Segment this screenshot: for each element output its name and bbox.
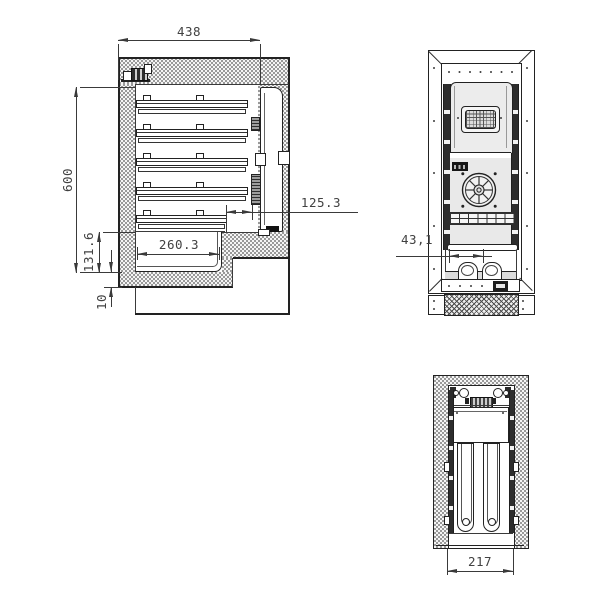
enclosure-bottom-line (436, 545, 524, 547)
dim-arrow (97, 263, 101, 273)
dim-ext-line (219, 247, 220, 260)
dim-arrow (209, 252, 219, 256)
dim-43-1-label: 43,1 (396, 233, 438, 247)
fan-icon (459, 170, 499, 210)
dim-125-3-label: 125.3 (295, 196, 347, 210)
dim-line (76, 87, 77, 273)
bracket-base-line (448, 405, 513, 406)
dim-arrow (503, 569, 513, 573)
dim-arrow (250, 38, 260, 42)
dim-arrow (109, 287, 113, 297)
base-panel (441, 279, 520, 292)
tube-port (488, 518, 496, 526)
dim-arrow (74, 87, 78, 97)
dim-arrow (242, 210, 252, 214)
shelf-rail (138, 224, 225, 229)
step-top-line (222, 232, 258, 233)
insulation-hatch-left (119, 84, 135, 287)
body-outline-top (119, 57, 289, 59)
dim-ext-line (118, 44, 119, 80)
dim-arrow (447, 569, 457, 573)
louver-strip (449, 212, 515, 225)
hinge-pin (144, 64, 152, 74)
terminal-clip (492, 398, 496, 404)
display-digits (454, 165, 465, 169)
terminal-clip (465, 398, 469, 404)
dim-arrow (97, 232, 101, 242)
insulation-hatch-bottom-band (119, 272, 233, 287)
grille-tab-right (517, 295, 535, 315)
rail-tab (513, 462, 519, 472)
ventilation-grille (444, 294, 519, 316)
dim-ext-line (260, 44, 261, 84)
shelf-rail (138, 196, 246, 201)
body-outline-left (118, 57, 120, 287)
shelf-bar (136, 215, 227, 223)
dim-260-3-label: 260.3 (154, 238, 204, 252)
rail-tab (513, 516, 519, 525)
door-hinge-cup-inner (255, 153, 266, 166)
dim-line (137, 254, 219, 255)
dim-ext-line (103, 232, 135, 233)
dim-217-label: 217 (456, 555, 504, 569)
cover-edge-line (454, 86, 455, 148)
shelf-rail (138, 167, 246, 172)
insulation-hatch-step-block (222, 232, 289, 258)
dim-ext-line (513, 549, 514, 575)
heat-pipe-tube-1 (457, 443, 474, 532)
machine-box-bottom (135, 313, 290, 315)
dim-600-label: 600 (61, 150, 75, 210)
power-connector (493, 281, 508, 291)
dim-arrow (473, 254, 483, 258)
cavity-left-line (135, 84, 136, 272)
body-outline-right (288, 57, 290, 314)
technical-drawing-sheet: 438 600 131.6 10 (0, 0, 600, 600)
condenser-box-line (454, 411, 507, 412)
cavity-top-line (135, 84, 289, 85)
dim-arrow (74, 263, 78, 273)
pipe-top-ellipse (485, 265, 498, 276)
bracket-hole-right (493, 388, 503, 398)
shelf-bar (136, 158, 248, 166)
shelf-rail (138, 138, 246, 143)
door-bottom-cap (258, 229, 270, 236)
dim-ext-line (80, 87, 135, 88)
tube-inner (487, 444, 498, 525)
dim-ext-line (483, 249, 484, 263)
dim-arrow (226, 210, 236, 214)
tube-port (462, 518, 470, 526)
shelf-bar (136, 100, 248, 108)
connector-slot (496, 284, 505, 288)
dim-line (118, 40, 260, 41)
heat-pipe-tube-2 (483, 443, 500, 532)
dim-arrow (118, 38, 128, 42)
pipe-top-ellipse (461, 265, 474, 276)
evaporator-element-small (251, 117, 260, 131)
shelf-bar (136, 187, 248, 195)
shelf-rail (138, 109, 246, 114)
vent-grille (465, 110, 496, 129)
dim-438-label: 438 (166, 25, 212, 39)
condenser-box (452, 407, 509, 443)
step-outline-h (233, 257, 289, 259)
recess-top-line (135, 231, 225, 232)
cover-edge-line (506, 86, 507, 148)
dim-arrow (109, 262, 113, 272)
machine-box-left (135, 287, 136, 314)
rail-tab (444, 516, 450, 525)
dim-131-6-label: 131.6 (82, 222, 96, 282)
dim-10-label: 10 (95, 272, 109, 332)
bracket-hole-left (459, 388, 469, 398)
tube-inner (461, 444, 472, 525)
unit-bottom-line (448, 533, 513, 534)
dim-arrow (449, 254, 459, 258)
rail-tab (444, 462, 450, 472)
shelf-bar (136, 129, 248, 137)
step-outline-v (232, 258, 233, 287)
door-lock-tab (278, 151, 290, 165)
dim-arrow (137, 252, 147, 256)
